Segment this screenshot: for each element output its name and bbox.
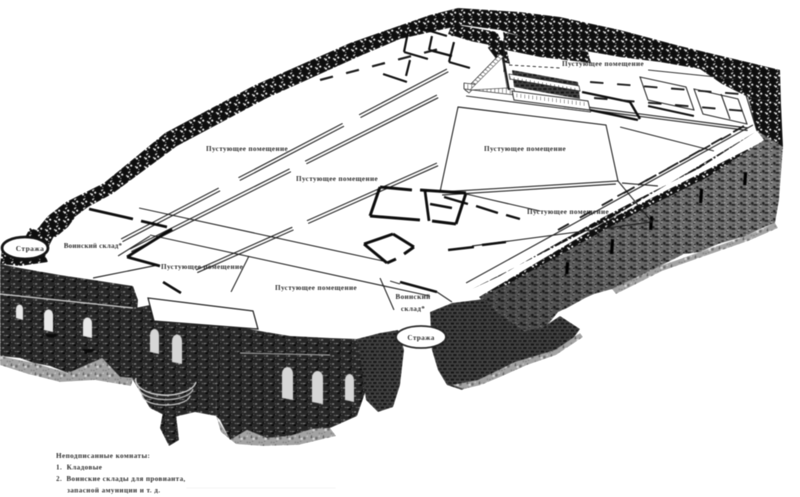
svg-text:Пустующее помещение: Пустующее помещение [527, 208, 609, 216]
svg-text:Пустующее помещение: Пустующее помещение [296, 175, 378, 183]
svg-text:Пустующее помещение: Пустующее помещение [275, 284, 357, 292]
svg-text:Неподписанные комнаты:: Неподписанные комнаты: [56, 452, 150, 460]
svg-text:Стража: Стража [16, 244, 45, 253]
svg-text:2. Воинские склады для провиа: 2. Воинские склады для провианта, [56, 475, 186, 483]
svg-text:Воинский склад*: Воинский склад* [64, 242, 123, 250]
svg-text:Пустующее помещение: Пустующее помещение [206, 145, 288, 153]
svg-text:Пустующее помещение: Пустующее помещение [161, 263, 243, 271]
svg-text:Пустующее помещение: Пустующее помещение [562, 60, 644, 68]
svg-text:запасной амуниции и т. д.: запасной амуниции и т. д. [67, 487, 161, 495]
svg-text:1. Кладовые: 1. Кладовые [56, 464, 102, 472]
svg-text:склад*: склад* [401, 304, 425, 313]
svg-text:Пустующее помещение: Пустующее помещение [484, 145, 566, 153]
svg-text:Воинский: Воинский [395, 292, 431, 301]
svg-text:Стража: Стража [407, 333, 434, 342]
